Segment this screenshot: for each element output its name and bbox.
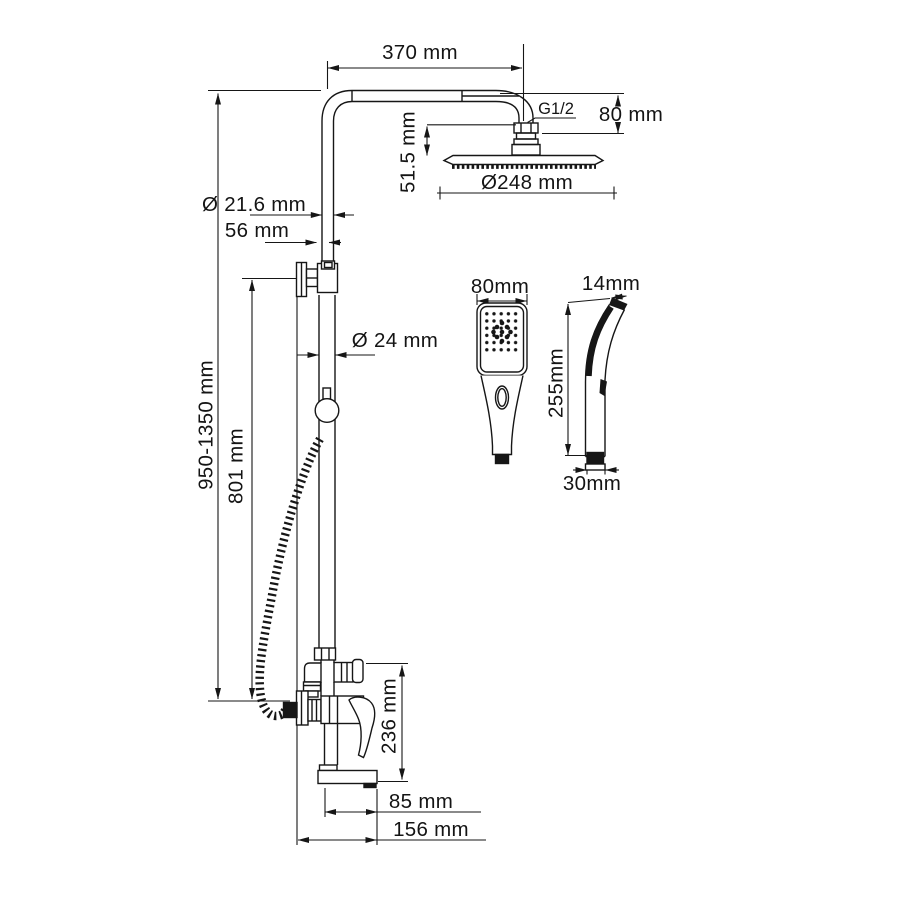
dim-label-riser-height: 801 mm xyxy=(225,428,248,504)
hand-shower-front-view xyxy=(477,303,527,464)
dim-label-upper-pipe: Ø 21.6 mm xyxy=(202,193,306,216)
hand-shower-side-view xyxy=(586,298,628,471)
technical-drawing-page: 370 mm G1/2 80 mm 51.5 mm Ø248 mm Ø 21.6… xyxy=(0,0,900,900)
dim-label-hs-handle: 30mm xyxy=(563,472,621,495)
dim-label-wall-clearance: 56 mm xyxy=(225,219,289,242)
hs-inlet-tip xyxy=(496,455,509,464)
hose-outlet xyxy=(284,703,298,718)
wall-bracket xyxy=(297,261,338,297)
dim-label-hs-depth: 14mm xyxy=(582,272,640,295)
dim-label-hs-width: 80mm xyxy=(471,275,529,298)
escutcheon-plate xyxy=(297,691,309,725)
shower-structure xyxy=(284,91,628,846)
mixer-lever xyxy=(349,697,375,757)
hs-side-hook-notch xyxy=(600,379,608,396)
rain-shower-head xyxy=(444,156,603,167)
spout xyxy=(318,771,377,784)
riser-pipe xyxy=(319,121,335,648)
dim-label-total-depth: 156 mm xyxy=(393,818,469,841)
rain-head-connector xyxy=(512,118,540,155)
thread-label: G1/2 xyxy=(538,100,574,118)
dim-label-overall-height: 950-1350 mm xyxy=(195,360,218,490)
dim-label-head-drop: 80 mm xyxy=(599,103,663,126)
shower-dimension-diagram: 370 mm G1/2 80 mm 51.5 mm Ø248 mm Ø 21.6… xyxy=(0,0,900,900)
diverter-body xyxy=(334,663,353,683)
spout-aerator xyxy=(364,784,376,788)
dim-line-hs-depth xyxy=(612,296,627,298)
hs-side-front-band xyxy=(589,307,612,376)
hs-side-inlet-tip xyxy=(587,453,604,465)
inlet-elbow xyxy=(305,663,322,682)
dim-label-lower-pipe: Ø 24 mm xyxy=(352,329,438,352)
shower-arm xyxy=(322,91,533,122)
dim-label-hs-length: 255mm xyxy=(545,348,568,418)
dim-label-head-stem: 51.5 mm xyxy=(397,111,420,193)
thread-leader-line xyxy=(528,118,577,123)
dim-label-mixer-height: 236 mm xyxy=(378,678,401,754)
dim-label-spout-reach: 85 mm xyxy=(389,790,453,813)
dim-label-arm-length: 370 mm xyxy=(382,41,458,64)
dim-label-head-diameter: Ø248 mm xyxy=(481,171,573,194)
